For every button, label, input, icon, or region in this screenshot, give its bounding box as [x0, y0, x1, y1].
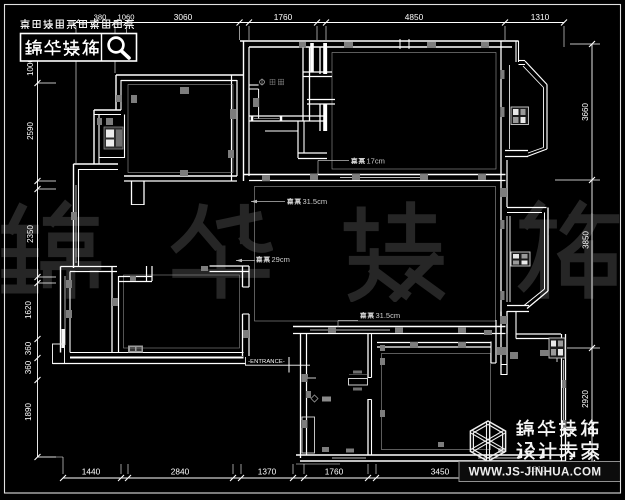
svg-text:3450: 3450 [431, 467, 450, 477]
svg-text:1440: 1440 [82, 467, 101, 477]
svg-text:3660: 3660 [581, 103, 590, 121]
svg-text:1760: 1760 [274, 12, 293, 22]
svg-text:31.5cm: 31.5cm [376, 311, 401, 320]
svg-text:2350: 2350 [26, 225, 35, 243]
svg-text:1890: 1890 [24, 403, 33, 421]
svg-text:1760: 1760 [325, 467, 344, 477]
svg-text:3850: 3850 [582, 231, 591, 249]
svg-text:17cm: 17cm [367, 157, 385, 166]
svg-text:4850: 4850 [405, 12, 424, 22]
svg-text:1310: 1310 [528, 464, 547, 474]
svg-text:360: 360 [24, 341, 33, 355]
svg-text:29cm: 29cm [272, 255, 290, 264]
svg-text:1310: 1310 [531, 12, 550, 22]
svg-text:2590: 2590 [26, 122, 35, 140]
svg-text:2920: 2920 [581, 390, 590, 408]
svg-text:360: 360 [24, 360, 33, 374]
svg-text:31.5cm: 31.5cm [303, 197, 328, 206]
svg-text:1370: 1370 [258, 467, 277, 477]
svg-text:3060: 3060 [174, 12, 193, 22]
svg-text:-ENTRANCE-: -ENTRANCE- [248, 359, 285, 365]
svg-text:1620: 1620 [24, 301, 33, 319]
svg-text:2840: 2840 [171, 467, 190, 477]
